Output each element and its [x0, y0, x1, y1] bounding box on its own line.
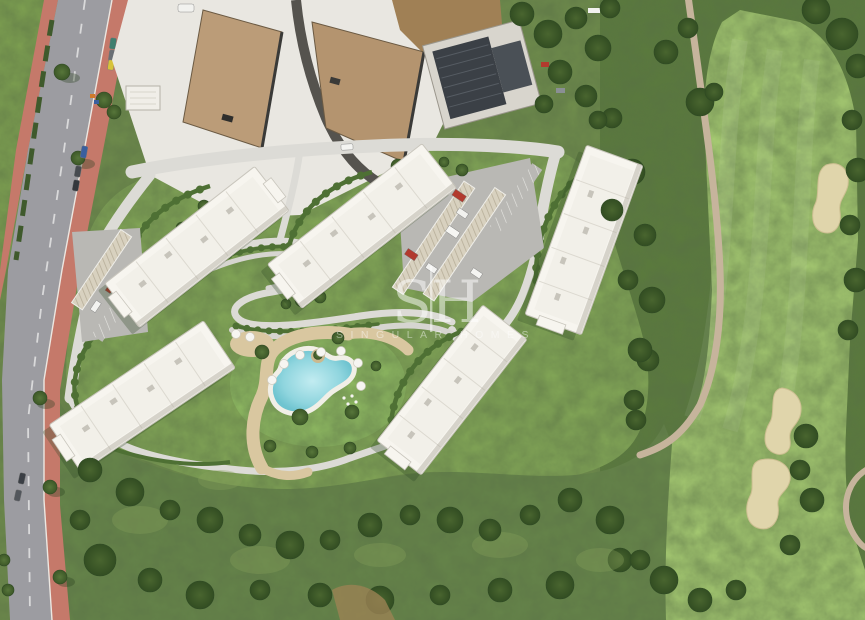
watermark-monogram-left: S: [392, 268, 432, 336]
car-on-drive: [341, 144, 353, 151]
watermark-subtitle: SINGULAR HOMES: [336, 329, 536, 341]
aerial-site-plan: S H SINGULAR HOMES: [0, 0, 865, 620]
watermark-monogram-right: H: [431, 268, 482, 336]
white-van: [178, 4, 194, 12]
